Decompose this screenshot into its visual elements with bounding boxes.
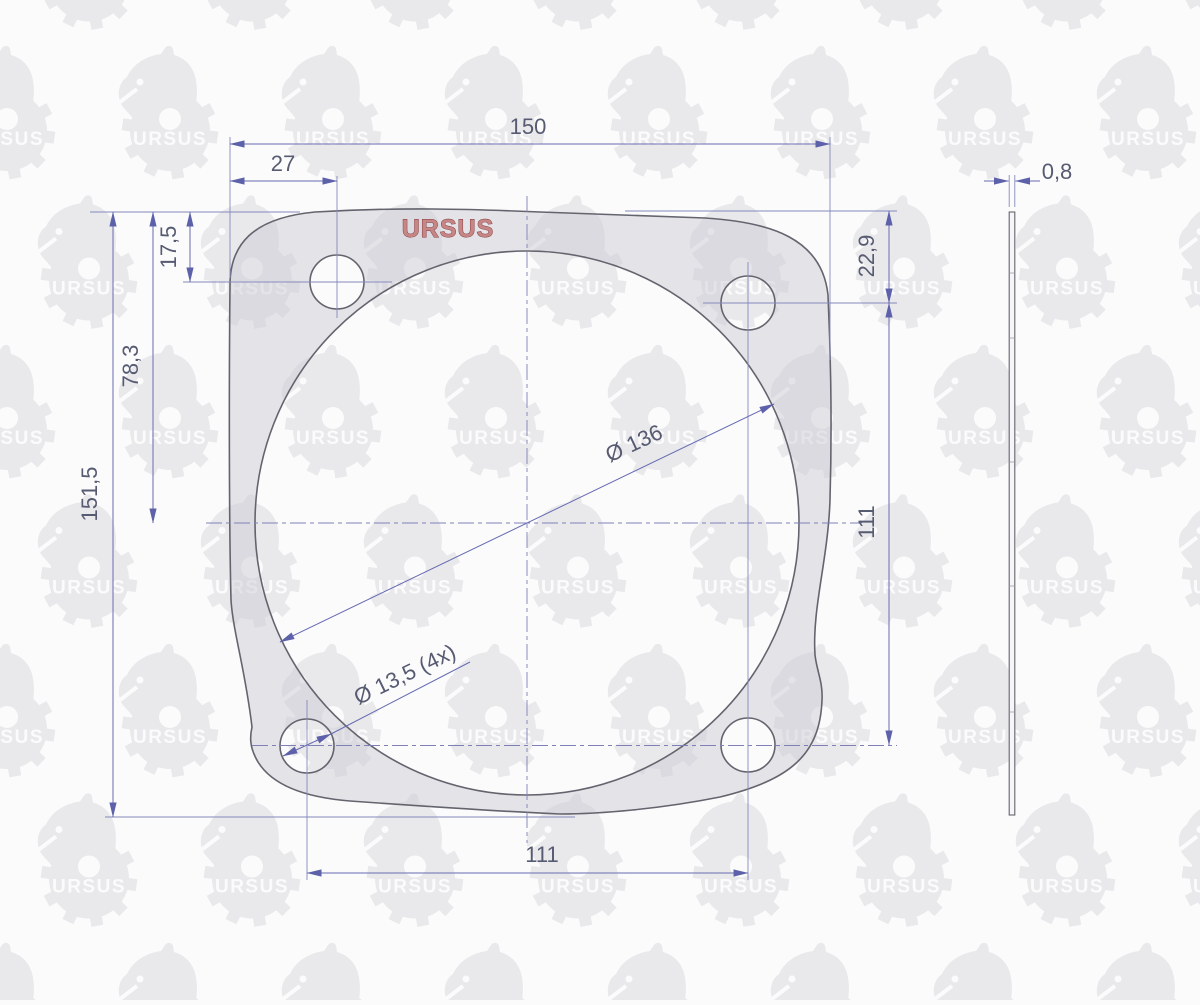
label-thickness: 0,8 <box>1042 159 1073 184</box>
watermark-instance <box>364 793 464 926</box>
watermark-instance <box>364 0 464 30</box>
watermark-instance <box>771 46 871 179</box>
technical-drawing-page: URSUS URSUS 150 27 <box>0 0 1200 1000</box>
watermark-instance <box>201 0 301 30</box>
watermark-instance <box>119 943 219 1000</box>
watermark-instance <box>445 943 545 1000</box>
watermark-instance <box>934 644 1034 777</box>
watermark-instance <box>1179 195 1200 328</box>
watermark-instance <box>608 943 708 1000</box>
brand-logo: URSUS <box>402 215 495 243</box>
watermark-instance <box>38 0 138 30</box>
watermark-instance <box>119 644 219 777</box>
watermark-instance <box>690 494 790 627</box>
watermark-instance <box>282 46 382 179</box>
watermark-instance <box>0 345 55 478</box>
watermark-instance <box>1016 793 1116 926</box>
watermark-instance <box>1179 0 1200 30</box>
watermark-instance <box>445 345 545 478</box>
watermark-instance <box>608 46 708 179</box>
label-center-from-top: 78,3 <box>118 345 143 388</box>
watermark-instance <box>119 46 219 179</box>
watermark-instance <box>1179 793 1200 926</box>
label-bolt-offset-x: 27 <box>271 151 295 176</box>
watermark-instance <box>771 943 871 1000</box>
watermark-instance <box>1016 0 1116 30</box>
label-overall-height: 151,5 <box>77 466 102 521</box>
gasket-drawing-canvas: URSUS URSUS 150 27 <box>0 0 1200 1000</box>
label-bolt-spacing-right: 111 <box>854 505 879 538</box>
ursus-watermark-pattern: URSUS <box>0 0 1200 1000</box>
watermark-instance <box>690 0 790 30</box>
label-bolt-spacing-bottom: 111 <box>525 842 558 867</box>
watermark-instance <box>0 46 55 179</box>
watermark-instance <box>445 644 545 777</box>
watermark-instance <box>1097 46 1197 179</box>
label-bolt-hole-diameter: Ø 13,5 (4x) <box>350 639 460 710</box>
watermark-instance <box>0 644 55 777</box>
watermark-instance <box>282 943 382 1000</box>
watermark-instance <box>1097 943 1197 1000</box>
watermark-instance <box>853 793 953 926</box>
watermark-instance <box>853 0 953 30</box>
watermark-instance <box>38 793 138 926</box>
watermark-instance <box>0 943 55 1000</box>
label-overall-width: 150 <box>510 114 547 139</box>
watermark-instance <box>934 345 1034 478</box>
watermark-instance <box>445 46 545 179</box>
watermark-instance <box>690 793 790 926</box>
gasket-profile-strip <box>1009 212 1015 815</box>
watermark-instance <box>1179 494 1200 627</box>
watermark-instance <box>527 494 627 627</box>
watermark-instance <box>934 46 1034 179</box>
watermark-instance <box>1097 345 1197 478</box>
watermark-instance <box>38 195 138 328</box>
watermark-instance <box>1016 195 1116 328</box>
watermark-instance <box>201 793 301 926</box>
watermark-instance <box>1097 644 1197 777</box>
watermark-instance <box>1016 494 1116 627</box>
watermark-instance <box>934 943 1034 1000</box>
label-bolt-offset-y-left: 17,5 <box>156 226 181 269</box>
label-bolt-offset-y-right: 22,9 <box>854 235 879 278</box>
watermark-instance <box>527 0 627 30</box>
